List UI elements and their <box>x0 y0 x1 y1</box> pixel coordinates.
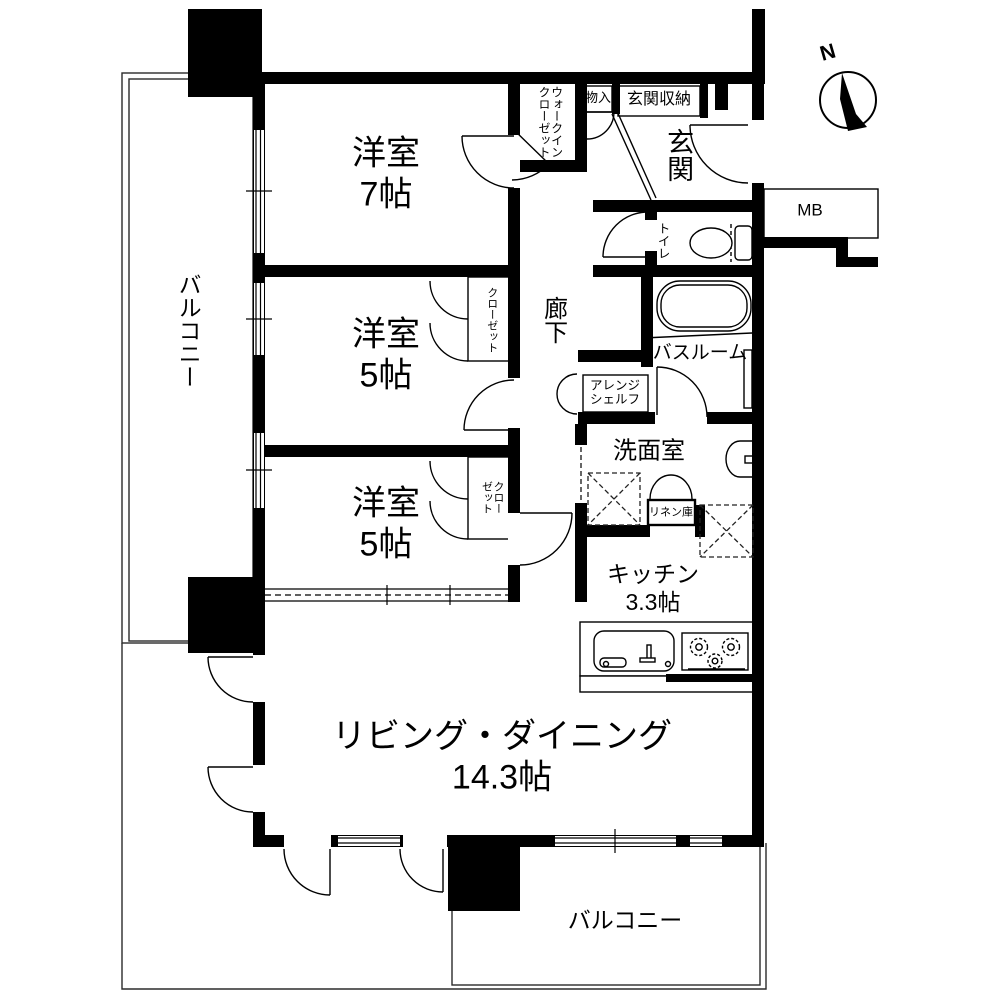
label-closet-bedroom2: クローゼット <box>485 284 497 356</box>
room-label-balcony-left: バルコニー <box>176 230 200 430</box>
counter-trim <box>666 674 753 682</box>
label-walk-in-closet: ウォークインクローゼット <box>537 82 562 162</box>
sink-icon <box>594 631 674 671</box>
entrance-step <box>612 111 656 200</box>
compass-icon <box>820 72 876 131</box>
room-label-toilet: トイレ <box>655 219 668 263</box>
room-label-balcony-bottom: バルコニー <box>568 906 683 934</box>
washbasin-icon <box>726 441 754 477</box>
room-label-bedroom2: 洋室5帖 <box>352 315 420 398</box>
room-label-bedroom3: 洋室5帖 <box>352 484 420 567</box>
label-meter-box: MB <box>797 201 823 222</box>
room-label-kitchen: キッチン3.3帖 <box>607 560 699 616</box>
room-label-hallway: 廊下 <box>540 290 565 350</box>
label-linen: リネン庫 <box>649 506 693 519</box>
label-entrance-storage: 玄関収納 <box>627 90 691 110</box>
room-label-bathroom: バスルーム <box>653 341 747 364</box>
label-arrange-shelf: アレンジシェルフ <box>586 379 644 408</box>
room-label-bedroom1: 洋室7帖 <box>352 134 420 217</box>
label-storage-small: 物入 <box>585 90 611 106</box>
toilet-icon <box>690 224 752 262</box>
room-label-living: リビング・ダイニング14.3帖 <box>332 717 672 800</box>
room-label-washroom: 洗面室 <box>613 436 685 465</box>
floor-plan: 洋室7帖 洋室5帖 洋室5帖 リビング・ダイニング14.3帖 キッチン3.3帖 … <box>0 0 1000 1000</box>
room-label-entrance: 玄関 <box>664 120 692 190</box>
stove-icon <box>682 633 748 670</box>
label-closet-bedroom3: クローゼット <box>477 476 503 518</box>
